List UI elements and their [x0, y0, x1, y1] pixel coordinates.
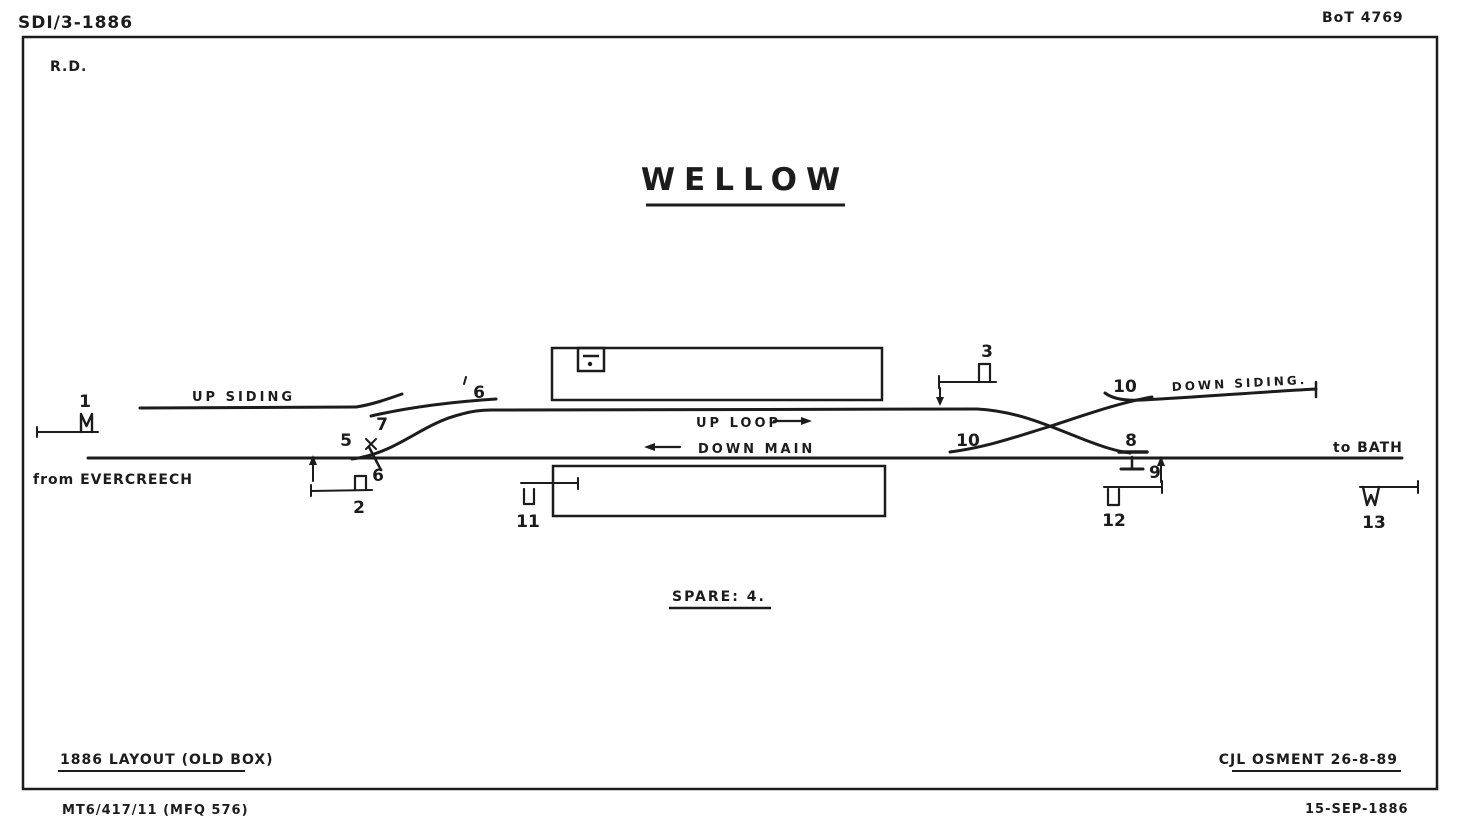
initials-label: R.D. [50, 59, 87, 75]
signal-3-label: 3 [981, 342, 993, 362]
up-loop-label: UP LOOP [696, 416, 781, 431]
signal-11: 11 [516, 478, 578, 532]
signal-13-label: 13 [1362, 513, 1386, 533]
stop-signal-icon [1363, 487, 1379, 505]
down-main-direction: DOWN MAIN [644, 442, 815, 457]
drawing-number: SDI/3-1886 [18, 13, 133, 33]
main-to-loop-connection [352, 410, 492, 459]
point-5-label: 5 [340, 431, 352, 451]
station-title: WELLOW [641, 162, 849, 198]
bot-reference: BoT 4769 [1322, 10, 1404, 26]
point-10-left-label: 10 [956, 431, 980, 451]
ground-disc-icon [979, 364, 990, 382]
diagram-canvas: SDI/3-1886 BoT 4769 MT6/417/11 (MFQ 576)… [0, 0, 1460, 826]
ground-disc-icon [524, 489, 534, 504]
signal-box-symbol [578, 348, 604, 371]
signal-11-label: 11 [516, 512, 540, 532]
loop-to-main-crossover [977, 409, 1147, 453]
spare-note: SPARE: 4. [669, 589, 771, 608]
signature-note: CJL OSMENT 26-8-89 [1219, 752, 1401, 771]
spare-note-text: SPARE: 4. [672, 589, 766, 605]
sheet-border [23, 37, 1437, 789]
point-6-upper-label: 6 [473, 383, 485, 403]
signal-12-label: 12 [1102, 511, 1126, 531]
down-main-label: DOWN MAIN [698, 442, 815, 457]
main-to-siding-crossover [950, 397, 1152, 452]
down-platform [553, 466, 885, 516]
footer-reference: MT6/417/11 (MFQ 576) [62, 803, 249, 818]
signal-2-label: 2 [353, 498, 365, 518]
signature-text: CJL OSMENT 26-8-89 [1219, 752, 1398, 768]
layout-note-text: 1886 LAYOUT (OLD BOX) [60, 752, 274, 768]
layout-note: 1886 LAYOUT (OLD BOX) [58, 752, 274, 771]
point-10-right-label: 10 [1113, 377, 1137, 397]
right-arrow-icon [801, 417, 812, 425]
point-7-label: 7 [376, 415, 388, 435]
left-arrow-icon [644, 443, 655, 451]
track-up-loop [490, 409, 977, 410]
point-6-lower-label: 6 [372, 466, 384, 486]
stop-signal-icon [81, 414, 92, 432]
from-evercreech-label: from EVERCREECH [33, 472, 193, 488]
up-platform [552, 348, 882, 400]
up-siding-label: UP SIDING [192, 390, 295, 405]
signal-9: 9 [1121, 456, 1165, 483]
ground-disc-icon [355, 476, 366, 490]
signal-diagram-sheet: SDI/3-1886 BoT 4769 MT6/417/11 (MFQ 576)… [0, 0, 1460, 826]
down-arrow-icon [936, 397, 944, 406]
signal-2: 2 [309, 455, 372, 518]
signal-3: 3 [936, 342, 996, 406]
signal-1-label: 1 [79, 392, 91, 412]
ground-disc-icon [1108, 489, 1119, 505]
footer-date: 15-SEP-1886 [1305, 802, 1409, 817]
signal-13: 13 [1360, 481, 1418, 533]
up-loop-direction: UP LOOP [696, 416, 812, 431]
signal-1: 1 [37, 392, 98, 437]
to-bath-label: to BATH [1333, 440, 1403, 456]
point-8-label: 8 [1125, 431, 1137, 451]
signal-12: 12 [1102, 481, 1162, 531]
